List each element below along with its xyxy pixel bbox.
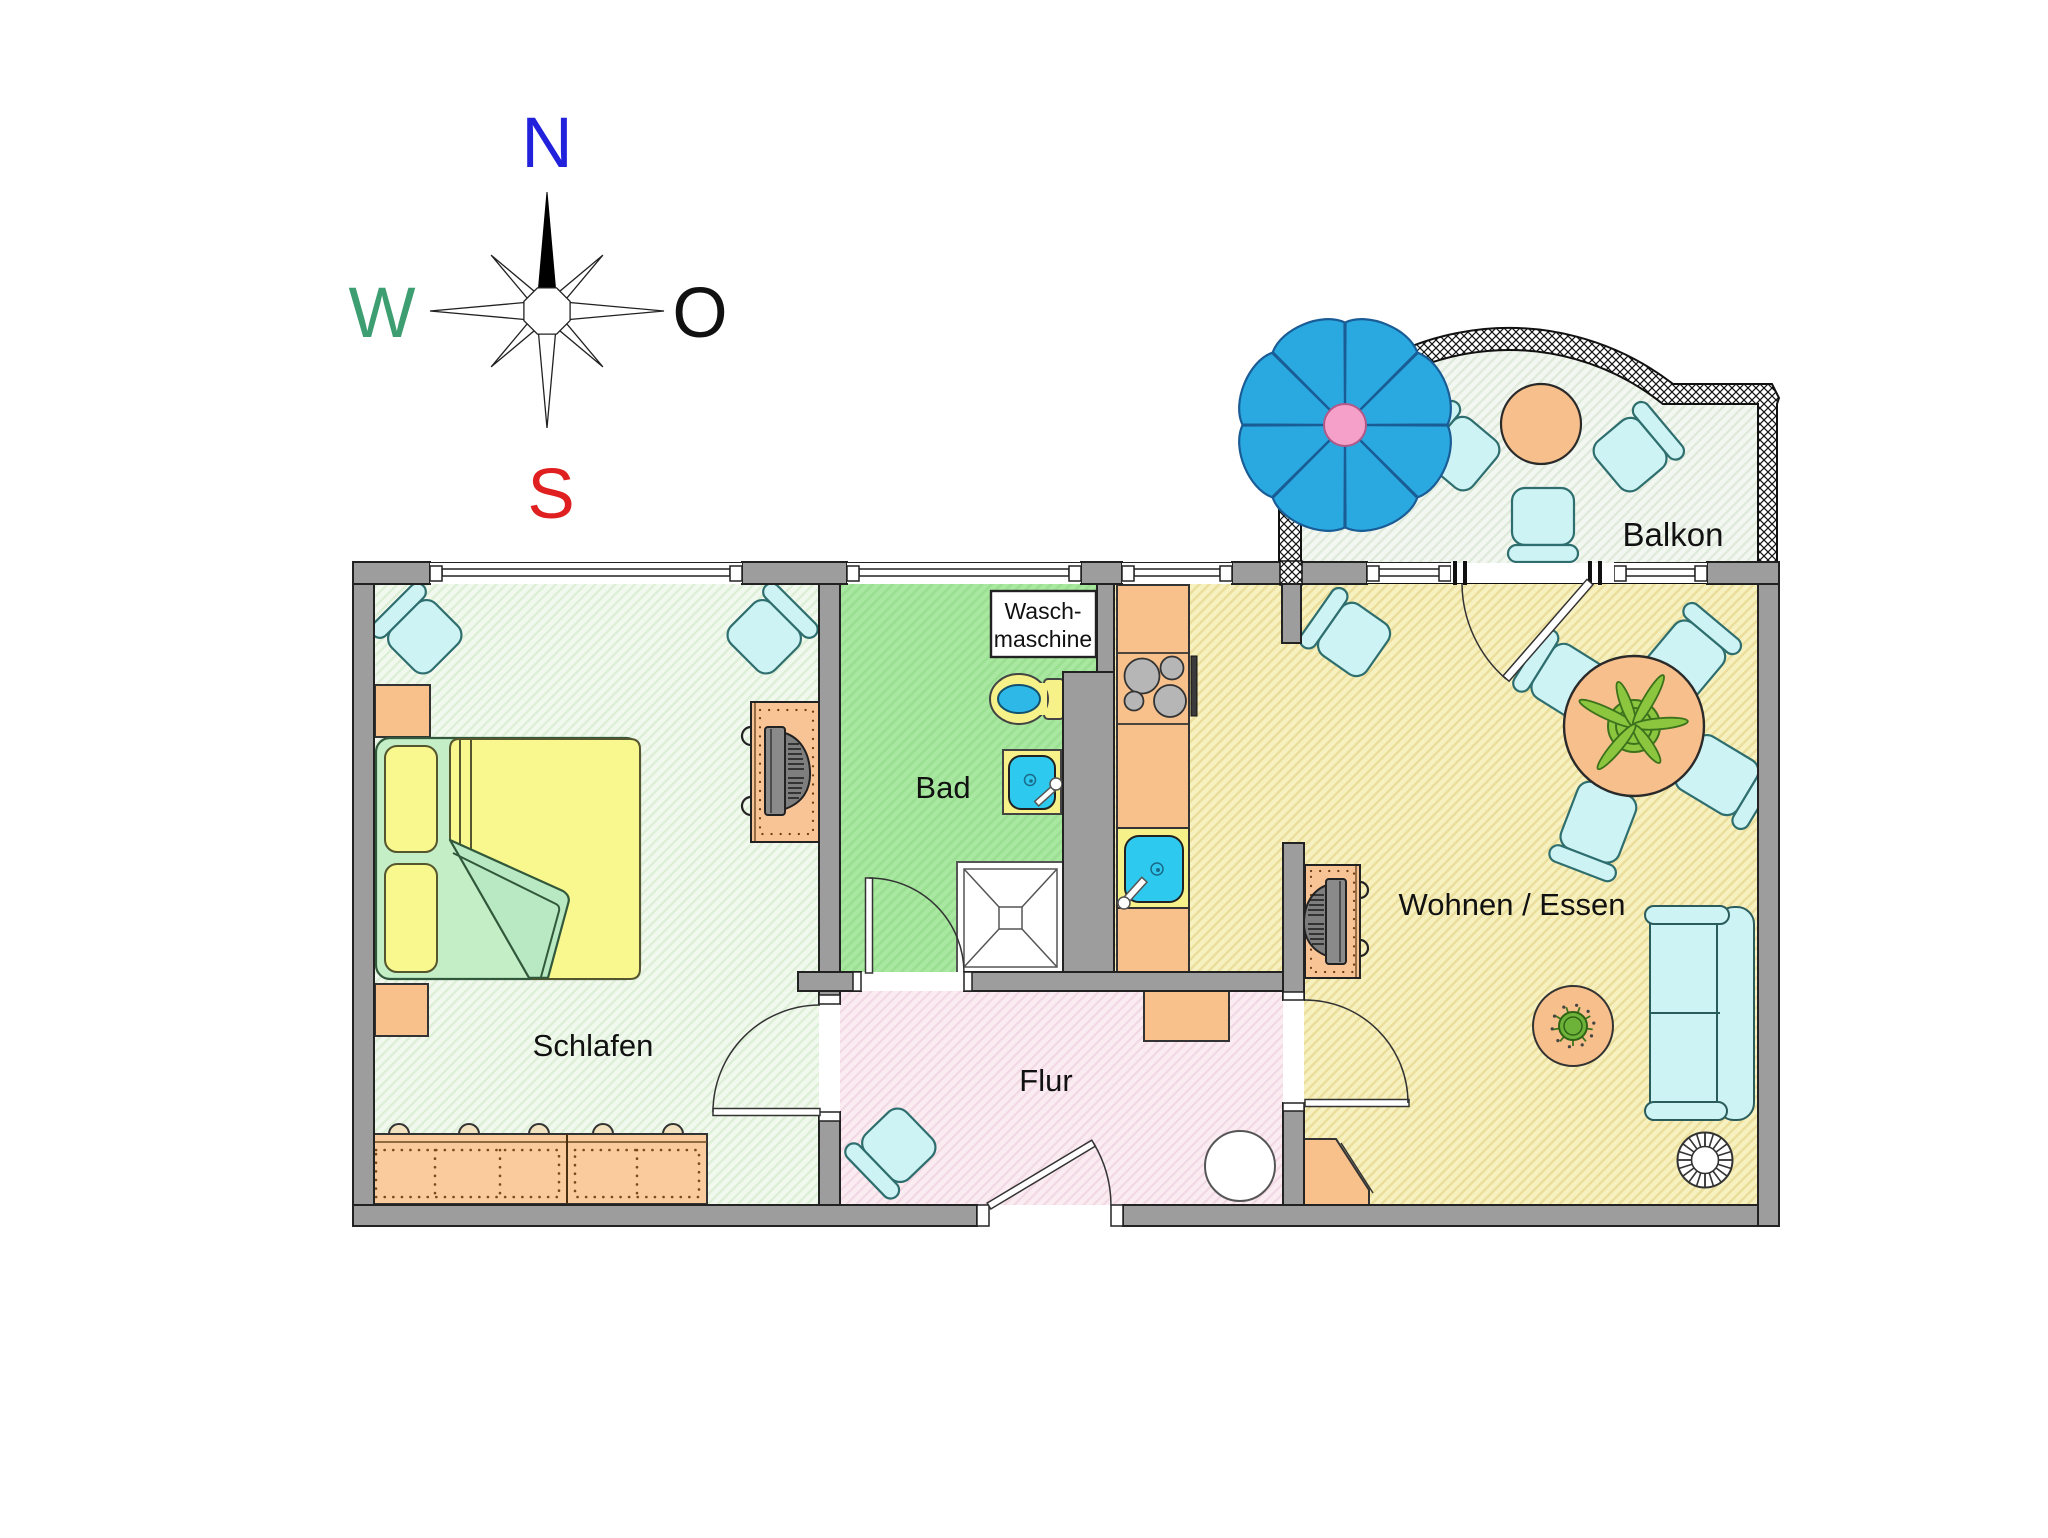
svg-text:S: S xyxy=(527,455,574,534)
svg-text:W: W xyxy=(348,274,415,353)
svg-text:Bad: Bad xyxy=(915,770,970,805)
svg-text:Wasch-: Wasch- xyxy=(1004,598,1081,624)
svg-text:N: N xyxy=(521,104,572,183)
svg-text:O: O xyxy=(672,274,727,353)
svg-text:Balkon: Balkon xyxy=(1623,516,1724,553)
svg-text:maschine: maschine xyxy=(994,626,1092,652)
svg-text:Wohnen / Essen: Wohnen / Essen xyxy=(1399,887,1626,922)
svg-text:Schlafen: Schlafen xyxy=(533,1028,654,1063)
svg-text:Flur: Flur xyxy=(1019,1063,1072,1098)
